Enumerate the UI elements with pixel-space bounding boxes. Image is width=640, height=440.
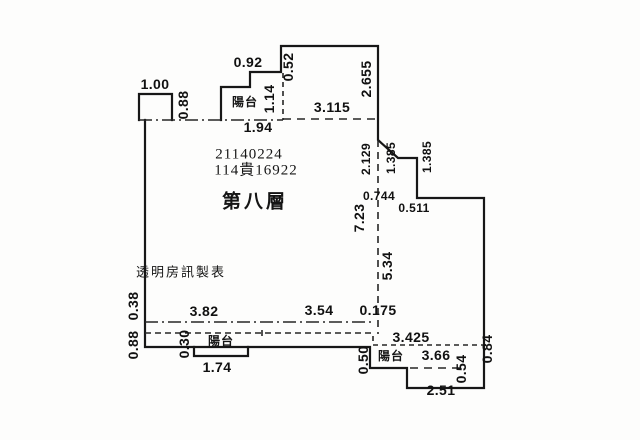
dim-top-left-width: 1.00 [141, 77, 170, 91]
publisher-watermark: 透明房訊製表 [136, 266, 226, 279]
dim-top-step-offset: 0.52 [281, 53, 295, 82]
dim-bottom-left-balcony-width: 1.74 [203, 360, 232, 374]
dim-interior-height-total: 7.23 [352, 204, 366, 233]
dim-top-terrace-width: 3.115 [314, 100, 350, 114]
case-number: 114貴16922 [214, 164, 297, 179]
dim-bottom-right-terrace-width: 3.425 [392, 330, 429, 344]
wall-main-outline [145, 46, 484, 388]
dim-notch-height-right: 1.385 [421, 141, 433, 173]
dim-right-upper-height: 2.129 [360, 143, 372, 175]
balcony-label-bottom-left: 陽台 [208, 335, 234, 347]
dim-right-lower-height: 0.84 [480, 335, 494, 364]
dim-notch-width: 0.511 [398, 202, 429, 214]
dim-bottom-gap: 0.175 [359, 303, 396, 317]
dim-bottom-width-left: 3.82 [190, 304, 219, 318]
wall-top-left-step [139, 94, 172, 120]
dim-top-left-height: 0.88 [176, 91, 190, 120]
floor-label: 第八層 [222, 193, 288, 212]
dim-upper-right-height: 2.655 [359, 60, 373, 97]
floor-plan-scan: 1.00 0.88 0.92 0.52 陽台 1.14 1.94 3.115 2… [0, 0, 640, 440]
dim-bottom-step-height: 0.50 [356, 346, 370, 375]
balcony-label-top: 陽台 [232, 96, 258, 108]
balcony-bottom-left-outline [194, 347, 248, 356]
dim-bottom-right-balcony-depth: 0.54 [454, 355, 468, 384]
dim-left-lower-offset: 0.38 [126, 292, 140, 321]
dim-bottom-right-balcony-width: 3.66 [422, 348, 451, 362]
floor-plan-lines [0, 0, 640, 440]
dim-interior-height-lower: 5.34 [380, 252, 394, 281]
serial-number: 21140224 [215, 148, 282, 163]
dim-bottom-right-bottom-width: 2.51 [427, 383, 456, 397]
dim-left-lower-height: 0.88 [126, 331, 140, 360]
dim-notch-offset: 0.744 [363, 190, 395, 202]
dim-bottom-width-mid: 3.54 [305, 303, 334, 317]
dim-top-balcony-width: 1.94 [244, 120, 273, 134]
dim-top-balcony-depth: 1.14 [262, 85, 276, 114]
dim-notch-height-left: 1.385 [385, 142, 397, 174]
floor-plan-drawing: 1.00 0.88 0.92 0.52 陽台 1.14 1.94 3.115 2… [0, 0, 640, 440]
balcony-label-bottom-right: 陽台 [378, 350, 404, 362]
dim-top-step-width: 0.92 [234, 55, 263, 69]
dim-bottom-left-balcony-depth: 0.30 [177, 330, 191, 359]
